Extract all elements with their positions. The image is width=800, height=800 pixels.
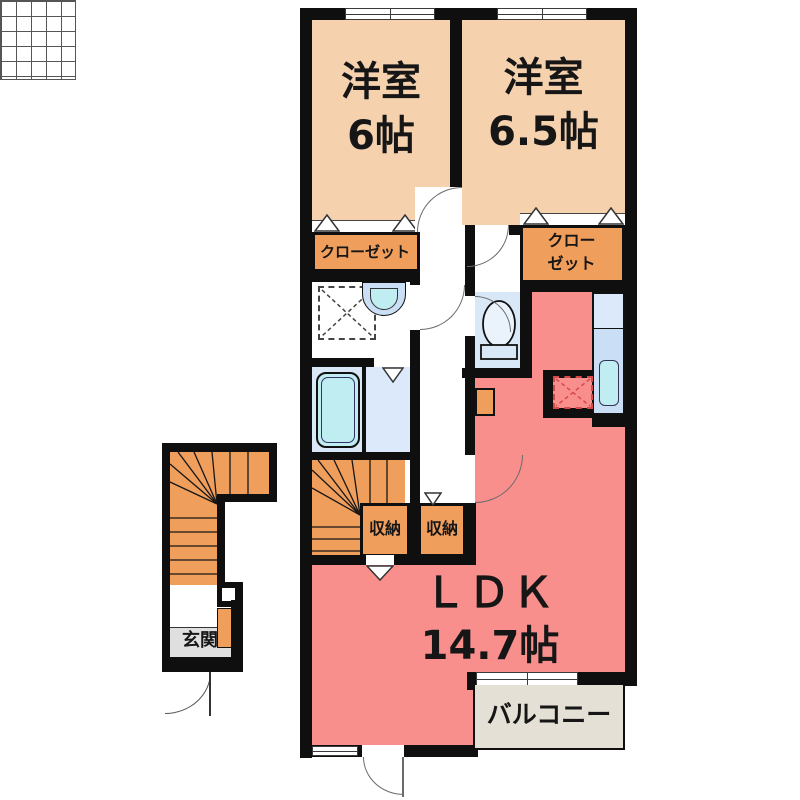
floor-plan: 洋室 6帖 洋室 6.5帖 クローゼット クロー ゼット 収納 収納 ＬＤＫ 1… xyxy=(0,0,800,800)
bedroom1-label: 洋室 xyxy=(312,62,450,102)
door-leaf xyxy=(402,757,404,797)
folding-door-marker xyxy=(314,214,340,232)
door-gap xyxy=(362,745,404,757)
wall-segment xyxy=(217,494,277,502)
door-arc xyxy=(363,757,404,795)
bedroom2-label: 洋室 xyxy=(462,58,625,98)
closet-right-label-line2: ゼット xyxy=(522,256,621,272)
storage-door-marker xyxy=(424,492,442,506)
wall-segment xyxy=(462,368,532,378)
wall-segment xyxy=(466,503,476,557)
porch-tiles xyxy=(0,0,76,80)
hallway-floor xyxy=(420,225,465,505)
window xyxy=(345,8,435,20)
wall-segment xyxy=(578,672,637,686)
entrance-label: 玄関 xyxy=(171,632,229,650)
door-gap xyxy=(366,555,394,565)
door-gap xyxy=(410,285,420,330)
door-gap xyxy=(374,358,410,367)
window xyxy=(312,746,358,756)
wall-segment xyxy=(362,367,366,452)
folding-door-marker xyxy=(598,207,624,225)
refrigerator-space xyxy=(553,376,593,409)
kitchen-sink xyxy=(599,360,619,406)
wall-segment xyxy=(300,452,420,460)
counter-block xyxy=(475,388,495,416)
wall-segment xyxy=(300,8,312,758)
ldk-label: ＬＤＫ xyxy=(350,572,630,614)
folding-door-marker xyxy=(523,207,549,225)
closet-right-label-line1: クロー xyxy=(522,233,621,249)
door-gap xyxy=(465,455,475,503)
wall-segment xyxy=(300,272,420,282)
kitchen-counter xyxy=(592,292,625,415)
wall-segment xyxy=(592,415,637,427)
closet-left-label: クローゼット xyxy=(314,245,416,260)
bathtub-inner xyxy=(321,377,355,443)
sliding-door xyxy=(476,672,578,686)
wall-segment xyxy=(162,443,277,452)
wall-segment xyxy=(520,292,532,378)
storage-right-label: 収納 xyxy=(418,521,466,537)
door-leaf xyxy=(209,672,211,716)
ldk-size: 14.7帖 xyxy=(350,626,630,666)
wall-segment xyxy=(217,494,225,590)
balcony-label: バルコニー xyxy=(476,702,622,727)
kitchen-counter-top xyxy=(594,294,623,329)
storage-left-label: 収納 xyxy=(360,521,410,537)
bedroom2-size: 6.5帖 xyxy=(462,112,625,152)
wall-segment xyxy=(450,8,462,188)
front-door-swing xyxy=(165,672,211,714)
window xyxy=(497,8,587,20)
wall-segment xyxy=(162,443,170,672)
bedroom1-size: 6帖 xyxy=(312,116,450,156)
bath-door-marker xyxy=(382,367,404,383)
door-gap xyxy=(465,296,475,336)
wall-segment xyxy=(543,408,595,418)
wall-segment xyxy=(162,657,243,672)
wall-segment xyxy=(465,378,475,455)
